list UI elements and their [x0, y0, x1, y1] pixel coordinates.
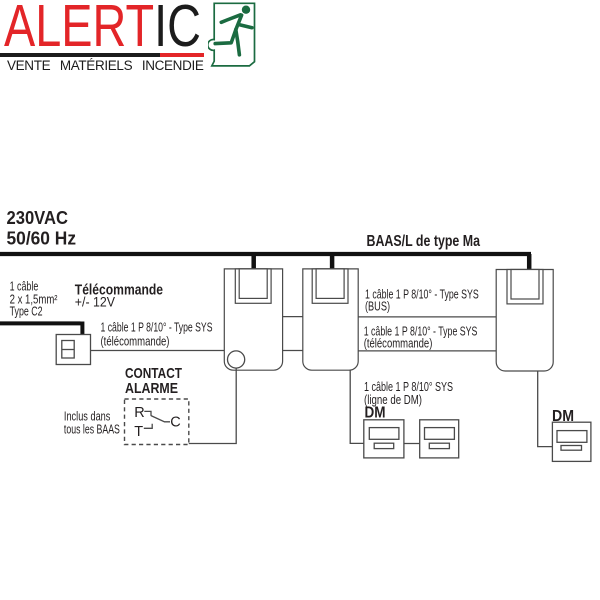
svg-text:T: T — [134, 424, 143, 440]
svg-text:tous les BAAS: tous les BAAS — [64, 422, 120, 437]
svg-text:(télécommande): (télécommande) — [101, 334, 170, 349]
svg-text:ALARME: ALARME — [125, 380, 178, 397]
svg-text:1 câble 1 P 8/10° - Type SYS: 1 câble 1 P 8/10° - Type SYS — [101, 320, 213, 335]
svg-text:BAAS/L de type Ma: BAAS/L de type Ma — [367, 233, 481, 250]
svg-text:C: C — [170, 414, 180, 430]
svg-text:(télécommande): (télécommande) — [364, 336, 433, 351]
svg-text:230VAC: 230VAC — [7, 208, 69, 228]
svg-text:(BUS): (BUS) — [365, 299, 390, 314]
svg-text:Type C2: Type C2 — [10, 304, 43, 319]
svg-text:+/- 12V: +/- 12V — [75, 295, 115, 310]
svg-text:R: R — [134, 405, 144, 421]
svg-text:50/60 Hz: 50/60 Hz — [7, 229, 77, 249]
svg-text:DM: DM — [365, 405, 386, 422]
